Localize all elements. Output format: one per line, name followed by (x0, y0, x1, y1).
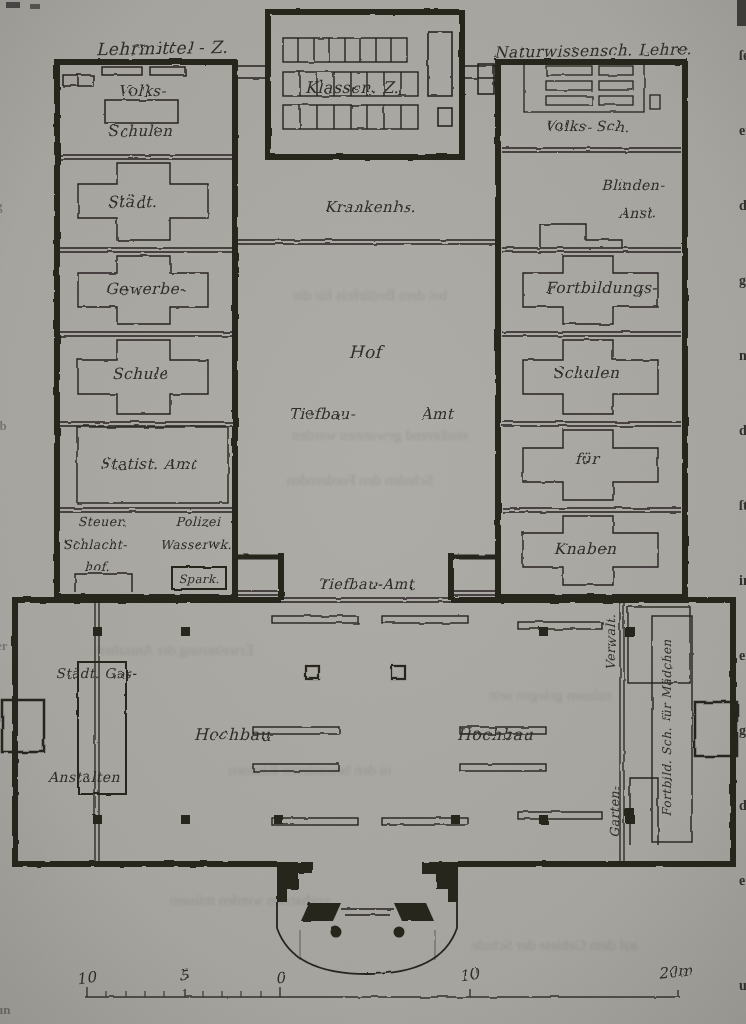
header-naturwissensch: Naturwissensch. Lehre. (494, 40, 692, 61)
scanned-floor-plan-page: bei dem Bedürfnis für die studierend gew… (0, 0, 746, 1024)
label-volks-right: Volks- Sch. (546, 118, 629, 134)
label-tiefbau-2: Amt (420, 405, 455, 423)
label-staedt: Städt. (107, 193, 157, 211)
label-anstalten: Anstalten (47, 769, 121, 785)
ghost-text: studierend gewonnen werden (292, 427, 468, 443)
label-klassen: Klassen. Z. (305, 78, 399, 97)
label-verwalt: Verwalt. (603, 614, 618, 670)
edge-fragment: den (739, 798, 746, 813)
scale-label-20m: 20m (657, 961, 694, 983)
edge-fragment: die (739, 423, 746, 438)
label-krankenhaus: Krankenhs. (324, 198, 416, 216)
label-garten: Garten- (607, 786, 622, 838)
ghost-text: bei dem Bedürfnis für die (293, 287, 447, 303)
edge-fragment: ſt (739, 498, 746, 513)
edge-fragment: n (739, 348, 746, 363)
ghost-text: müssen gelegen sein (488, 687, 612, 703)
corner-ink-mark (6, 2, 20, 8)
label-wasserwerk: Wasserwk. (160, 537, 232, 552)
scale-label-10-right: 10 (458, 965, 481, 986)
label-hof-suffix: hof. (84, 559, 110, 574)
label-volks-left-2: Schulen (108, 122, 173, 140)
ghost-text: Erweiterung der Anstalten (96, 642, 254, 658)
label-blinden-1: Blinden- (601, 177, 665, 193)
edge-fragment: er (0, 638, 8, 653)
label-schlacht: Schlacht- (63, 537, 127, 552)
edge-fragment: er (739, 648, 746, 663)
edge-fragment: ung (739, 978, 746, 993)
column (394, 927, 405, 938)
label-fortbild-maedchen: Fortbild. Sch. für Mädchen (660, 639, 674, 817)
column (331, 927, 342, 938)
label-blinden-2: Anst. (618, 205, 658, 221)
edge-fragment: e (739, 873, 745, 888)
label-steuer: Steuer. (78, 514, 127, 529)
corner-ink-mark (30, 4, 40, 9)
label-gewerbe: Gewerbe- (105, 280, 185, 298)
label-fortbildungs: Fortbildungs- (545, 279, 657, 297)
edge-fragment: un (0, 1002, 11, 1017)
label-sparkasse: Spark. (178, 572, 219, 586)
label-staedt-gas: Städt. Gas- (55, 665, 137, 681)
label-schulen: Schulen (553, 364, 620, 382)
label-knaben: Knaben (554, 540, 617, 558)
corner-ink-mark (737, 0, 746, 26)
label-hochbau-left: Hochbau (194, 725, 271, 744)
ghost-text: auf dem Gebiete der Schule (471, 937, 638, 953)
header-lehrmittel: Lehrmittel - Z. (96, 37, 228, 59)
edge-fragment: ſe (739, 48, 746, 63)
floor-plan-drawing: bei dem Bedürfnis für die studierend gew… (0, 0, 746, 1024)
ghost-text: vorhanden werden müssen (170, 892, 330, 908)
edge-fragment: er (739, 123, 746, 138)
edge-fragment: d. (739, 198, 746, 213)
label-hochbau-right: Hochbau (457, 725, 534, 744)
label-statist-amt: Statist. Amt (100, 455, 198, 473)
edge-fragment: g. (739, 723, 746, 738)
label-fuer: für (575, 450, 601, 468)
label-tiefbau-1: Tiefbau- (289, 405, 356, 423)
ghost-text: Schulen den Fordernden (286, 472, 433, 488)
label-polizei: Polizei (176, 514, 221, 529)
edge-fragment: ib (0, 418, 7, 433)
label-hof: Hof (349, 342, 386, 362)
label-volks-left-1: Volks- (118, 82, 167, 100)
edge-fragment: in (739, 573, 746, 588)
label-tiefbau-amt: Tiefbau-Amt (318, 576, 416, 592)
edge-fragment: ge (739, 273, 746, 288)
label-schule: Schule (112, 365, 169, 383)
scale-label-10-left: 10 (75, 968, 98, 989)
